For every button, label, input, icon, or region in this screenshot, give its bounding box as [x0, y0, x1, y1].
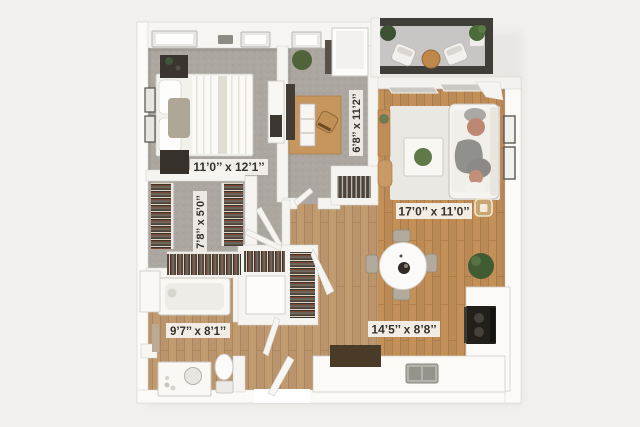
svg-text:7’8’’ x 5’0’’: 7’8’’ x 5’0’’ [195, 195, 207, 249]
svg-text:14’5’’ x 8’8’’: 14’5’’ x 8’8’’ [371, 323, 436, 337]
svg-text:9’7’’ x 8’1’’: 9’7’’ x 8’1’’ [170, 326, 226, 338]
svg-text:6’8’’ x 11’2’’: 6’8’’ x 11’2’’ [351, 93, 363, 152]
svg-text:17’0’’ x 11’0’’: 17’0’’ x 11’0’’ [398, 205, 469, 219]
svg-text:11’0’’ x 12’1’’: 11’0’’ x 12’1’’ [193, 160, 264, 174]
